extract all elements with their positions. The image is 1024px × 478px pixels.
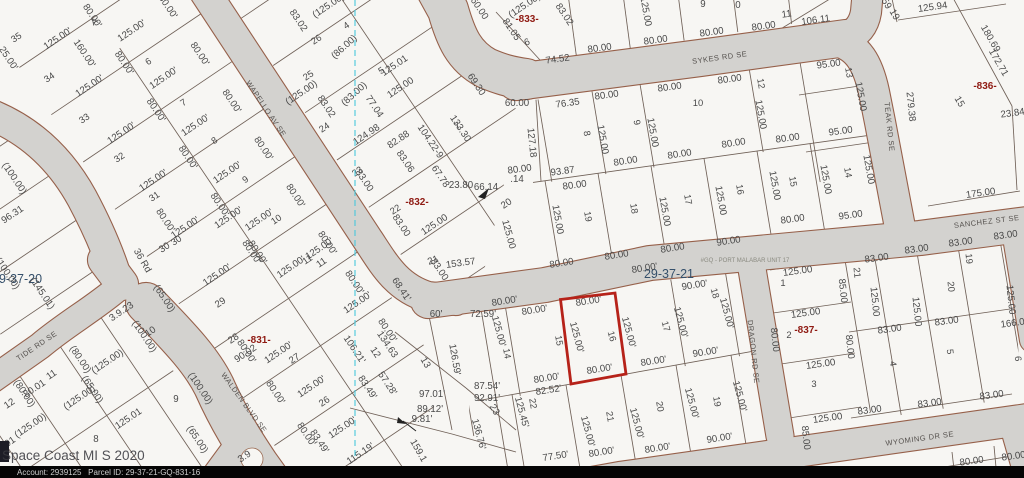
svg-text:21: 21 [604, 410, 617, 422]
svg-text:22: 22 [527, 397, 540, 409]
svg-text:2: 2 [786, 329, 791, 340]
svg-text:72.59': 72.59' [470, 309, 496, 320]
svg-text:97.01': 97.01' [419, 389, 445, 400]
svg-text:13: 13 [843, 66, 856, 78]
svg-text:14: 14 [842, 166, 855, 178]
svg-text:15: 15 [787, 175, 800, 187]
svg-text:-837-: -837- [794, 325, 817, 336]
svg-text:16: 16 [734, 183, 747, 195]
svg-text:9: 9 [173, 394, 178, 405]
svg-text:9.81': 9.81' [412, 414, 433, 425]
svg-text:21: 21 [851, 267, 863, 279]
svg-text:17: 17 [682, 193, 695, 205]
svg-text:-836-: -836- [973, 81, 996, 92]
svg-text:19: 19 [963, 253, 975, 265]
svg-text:12: 12 [755, 77, 768, 89]
svg-text:19: 19 [582, 210, 595, 222]
svg-text:87.54': 87.54' [474, 381, 500, 392]
svg-text:60': 60' [430, 309, 443, 320]
svg-text:23.80: 23.80 [449, 180, 474, 191]
svg-text:19: 19 [711, 395, 724, 407]
svg-text:20: 20 [945, 281, 957, 293]
svg-text:14: 14 [501, 347, 514, 359]
svg-text:9: 9 [700, 0, 705, 10]
svg-text:20: 20 [654, 400, 667, 412]
svg-text:6: 6 [1013, 355, 1024, 361]
svg-text:11: 11 [781, 8, 792, 20]
svg-text:10: 10 [693, 97, 703, 108]
svg-text:#GQ - PORT MALABAR UNIT 17: #GQ - PORT MALABAR UNIT 17 [701, 258, 790, 264]
svg-text:3: 3 [811, 378, 816, 389]
svg-text:0: 0 [735, 0, 741, 11]
svg-text:Space Coast MI S 2020: Space Coast MI S 2020 [2, 448, 145, 463]
svg-text:Account: 2939125 Parcel ID:: Account: 2939125 Parcel ID: 29-37-21-GQ-… [17, 468, 201, 477]
svg-text:8: 8 [93, 434, 98, 445]
svg-text:18: 18 [628, 202, 641, 214]
svg-text:-832-: -832- [405, 197, 428, 208]
svg-text:60.00: 60.00 [505, 98, 530, 109]
